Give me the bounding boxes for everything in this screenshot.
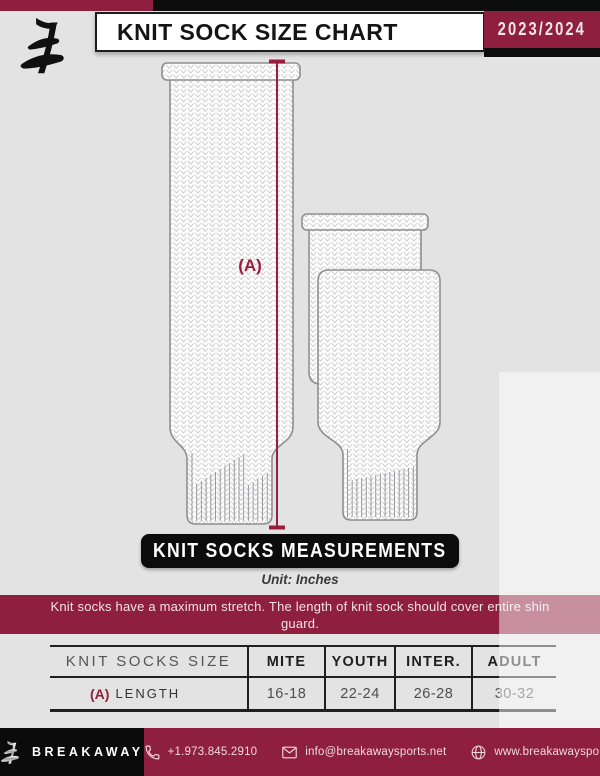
size-table: KNIT SOCKS SIZE MITE YOUTH INTER. ADULT …	[50, 645, 556, 712]
stretch-notice-banner: Knit socks have a maximum stretch. The l…	[0, 595, 600, 634]
phone-number: +1.973.845.2910	[168, 746, 258, 758]
email-contact[interactable]: info@breakawaysports.net	[281, 744, 446, 761]
title-bar: KNIT SOCK SIZE CHART	[95, 12, 485, 52]
table-header-inter: INTER.	[394, 647, 471, 678]
footer-brand-block: BREAKAWAY	[0, 728, 144, 776]
season-label: 2023/2024	[498, 19, 586, 40]
brand-name: BREAKAWAY	[32, 745, 144, 759]
table-header-size: KNIT SOCKS SIZE	[50, 647, 247, 678]
season-badge: 2023/2024	[484, 11, 600, 48]
measurements-banner-label: KNIT SOCKS MEASUREMENTS	[153, 540, 446, 563]
sock-small	[318, 270, 440, 520]
stretch-notice-text: Knit socks have a maximum stretch. The l…	[50, 598, 550, 632]
website-contact[interactable]: www.breakawaysports.net	[470, 744, 600, 761]
sock-large	[162, 63, 300, 524]
measurements-banner: KNIT SOCKS MEASUREMENTS	[141, 534, 459, 568]
phone-contact[interactable]: +1.973.845.2910	[144, 744, 258, 761]
page-title: KNIT SOCK SIZE CHART	[117, 19, 398, 46]
top-accent-strip-red	[0, 0, 153, 11]
breakaway-b-logo-icon	[18, 14, 76, 78]
table-header-youth: YOUTH	[324, 647, 394, 678]
breakaway-b-logo-icon	[0, 739, 24, 766]
envelope-icon	[281, 744, 298, 761]
table-header-mite: MITE	[247, 647, 324, 678]
table-value-inter: 26-28	[394, 678, 471, 709]
knit-sock-diagram: (A)	[0, 55, 600, 535]
globe-icon	[470, 744, 487, 761]
phone-icon	[144, 744, 161, 761]
website-url: www.breakawaysports.net	[494, 746, 600, 758]
table-value-adult: 30-32	[471, 678, 556, 709]
measure-label-a: (A)	[238, 256, 262, 275]
unit-note: Unit: Inches	[0, 572, 600, 587]
measure-name-length: LENGTH	[115, 686, 180, 701]
footer: BREAKAWAY +1.973.845.2910 info@breakaway…	[0, 728, 600, 776]
table-header-adult: ADULT	[471, 647, 556, 678]
measure-key-a: (A)	[90, 686, 109, 702]
table-row-label: (A) LENGTH	[50, 678, 247, 709]
email-address: info@breakawaysports.net	[305, 746, 446, 758]
footer-contact-block: +1.973.845.2910 info@breakawaysports.net…	[144, 728, 600, 776]
table-value-youth: 22-24	[324, 678, 394, 709]
knit-sock-size-chart-page: KNIT SOCK SIZE CHART 2023/2024 B	[0, 0, 600, 776]
table-value-mite: 16-18	[247, 678, 324, 709]
